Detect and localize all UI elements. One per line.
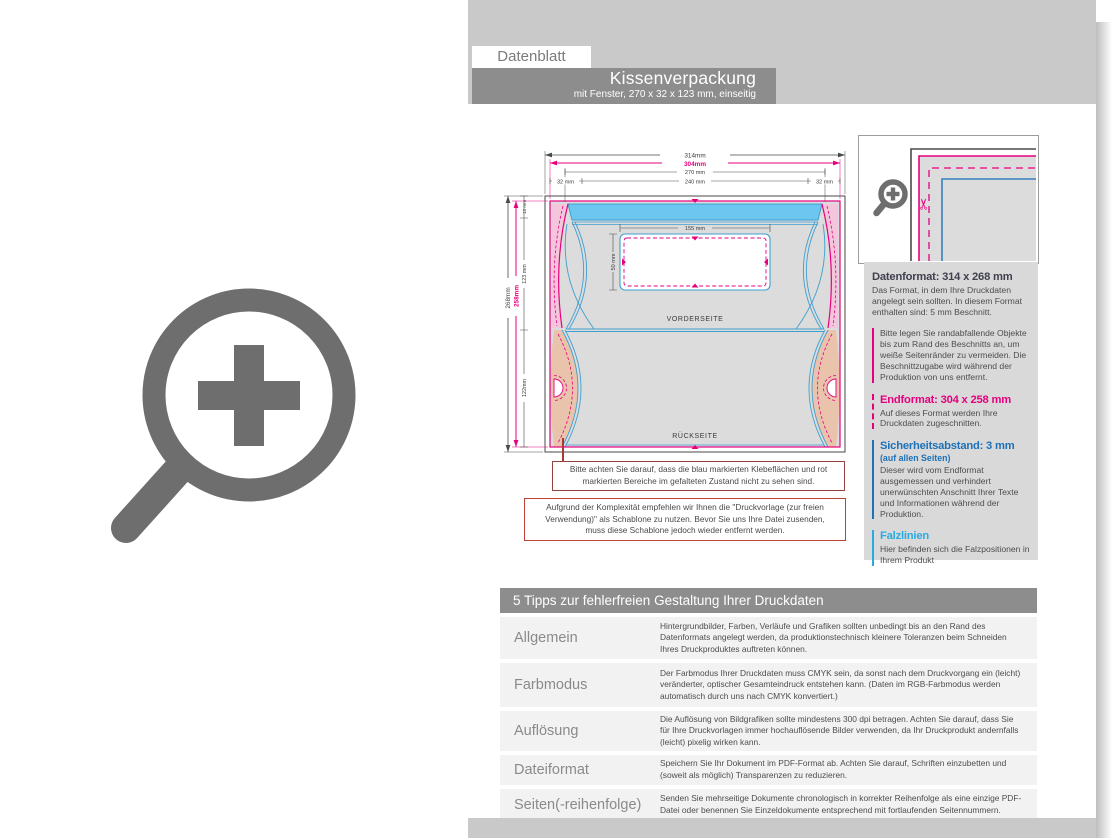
note-connector-line xyxy=(562,438,564,461)
glue-areas-note: Bitte achten Sie darauf, dass die blau m… xyxy=(552,461,845,491)
tips-table: Allgemein Hintergrundbilder, Farben, Ver… xyxy=(500,617,1037,825)
dim-flap-right: 32 mm xyxy=(816,179,833,185)
page-shadow xyxy=(1096,22,1112,838)
tip-label: Seiten(-reihenfolge) xyxy=(500,797,660,813)
title-bar: Kissenverpackung mit Fenster, 270 x 32 x… xyxy=(472,68,776,104)
tip-row-dateiformat: Dateiformat Speichern Sie Ihr Dokument i… xyxy=(500,755,1037,785)
tip-text: Der Farbmodus Ihrer Druckdaten muss CMYK… xyxy=(660,664,1037,707)
datenblatt-tag: Datenblatt xyxy=(472,46,591,68)
format-info-panel: Datenformat: 314 x 268 mm Das Format, in… xyxy=(864,262,1038,560)
tip-label: Farbmodus xyxy=(500,677,660,693)
sicherheitsabstand-subtitle: (auf allen Seiten) xyxy=(880,453,1030,463)
scissors-icon: ✂ xyxy=(916,198,933,211)
dim-width-inner: 270 mm xyxy=(685,170,706,176)
dim-body-width: 240 mm xyxy=(685,179,706,185)
dim-width-end: 304mm xyxy=(684,161,706,168)
front-label: VORDERSEITE xyxy=(667,316,724,323)
tip-label: Allgemein xyxy=(500,630,660,646)
tips-header: 5 Tipps zur fehlerfreien Gestaltung Ihre… xyxy=(500,588,1037,613)
tip-row-aufloesung: Auflösung Die Auflösung von Bildgrafiken… xyxy=(500,711,1037,751)
die-cut-diagram: VORDERSEITE RÜCKSEITE 314mm 304mm 270 mm… xyxy=(500,140,850,460)
falzlinien-title: Falzlinien xyxy=(880,530,1030,542)
datenformat-body: Das Format, in dem Ihre Druckdaten angel… xyxy=(872,285,1030,317)
dim-front-height: 123 mm xyxy=(522,264,528,284)
dim-flap-left: 32 mm xyxy=(557,179,574,185)
page-title: Kissenverpackung xyxy=(472,68,756,89)
dim-width-total: 314mm xyxy=(684,153,705,160)
endformat-body: Auf dieses Format werden Ihre Druckdaten… xyxy=(880,408,1030,430)
tip-text: Hintergrundbilder, Farben, Verläufe und … xyxy=(660,617,1037,660)
sicherheitsabstand-title: Sicherheitsabstand: 3 mm xyxy=(880,440,1030,452)
tip-row-seitenreihenfolge: Seiten(-reihenfolge) Senden Sie mehrseit… xyxy=(500,789,1037,821)
tip-text: Die Auflösung von Bildgrafiken sollte mi… xyxy=(660,710,1037,753)
page-subtitle: mit Fenster, 270 x 32 x 123 mm, einseiti… xyxy=(472,89,756,100)
back-label: RÜCKSEITE xyxy=(672,432,717,440)
dim-height-total: 268mm xyxy=(505,287,512,308)
endformat-section: Endformat: 304 x 258 mm Auf dieses Forma… xyxy=(872,394,1030,430)
sicherheitsabstand-body: Dieser wird vom Endformat ausgemessen un… xyxy=(880,465,1030,519)
tip-row-allgemein: Allgemein Hintergrundbilder, Farben, Ver… xyxy=(500,617,1037,659)
footer-band xyxy=(468,818,1096,838)
falzlinien-body: Hier befinden sich die Falzpositionen in… xyxy=(880,544,1030,566)
bleed-note-text: Bitte legen Sie randabfallende Objekte b… xyxy=(880,328,1030,382)
endformat-title: Endformat: 304 x 258 mm xyxy=(880,394,1030,406)
tip-text: Speichern Sie Ihr Dokument im PDF-Format… xyxy=(660,754,1037,785)
dim-back-height: 122mm xyxy=(522,379,528,397)
template-note: Aufgrund der Komplexität empfehlen wir I… xyxy=(524,498,846,541)
tip-row-farbmodus: Farbmodus Der Farbmodus Ihrer Druckdaten… xyxy=(500,663,1037,707)
tip-text: Senden Sie mehrseitige Dokumente chronol… xyxy=(660,789,1037,820)
dim-height-end: 258mm xyxy=(513,285,520,307)
zoom-plus-icon-small xyxy=(869,176,913,222)
dim-window-width: 155 mm xyxy=(685,226,706,232)
falzlinien-section: Falzlinien Hier befinden sich die Falzpo… xyxy=(872,530,1030,566)
dim-window-height: 50 mm xyxy=(611,253,617,270)
bleed-note: Bitte legen Sie randabfallende Objekte b… xyxy=(872,328,1030,382)
datenformat-section: Datenformat: 314 x 268 mm Das Format, in… xyxy=(872,271,1030,317)
window-cutout xyxy=(620,234,770,290)
tip-label: Dateiformat xyxy=(500,762,660,778)
datenformat-title: Datenformat: 314 x 268 mm xyxy=(872,271,1030,283)
datasheet-page: Datenblatt Kissenverpackung mit Fenster,… xyxy=(0,0,1117,838)
sicherheitsabstand-section: Sicherheitsabstand: 3 mm (auf allen Seit… xyxy=(872,440,1030,519)
zoom-plus-icon xyxy=(100,282,370,552)
tip-label: Auflösung xyxy=(500,723,660,739)
dim-top-band: 13 mm xyxy=(522,200,527,214)
